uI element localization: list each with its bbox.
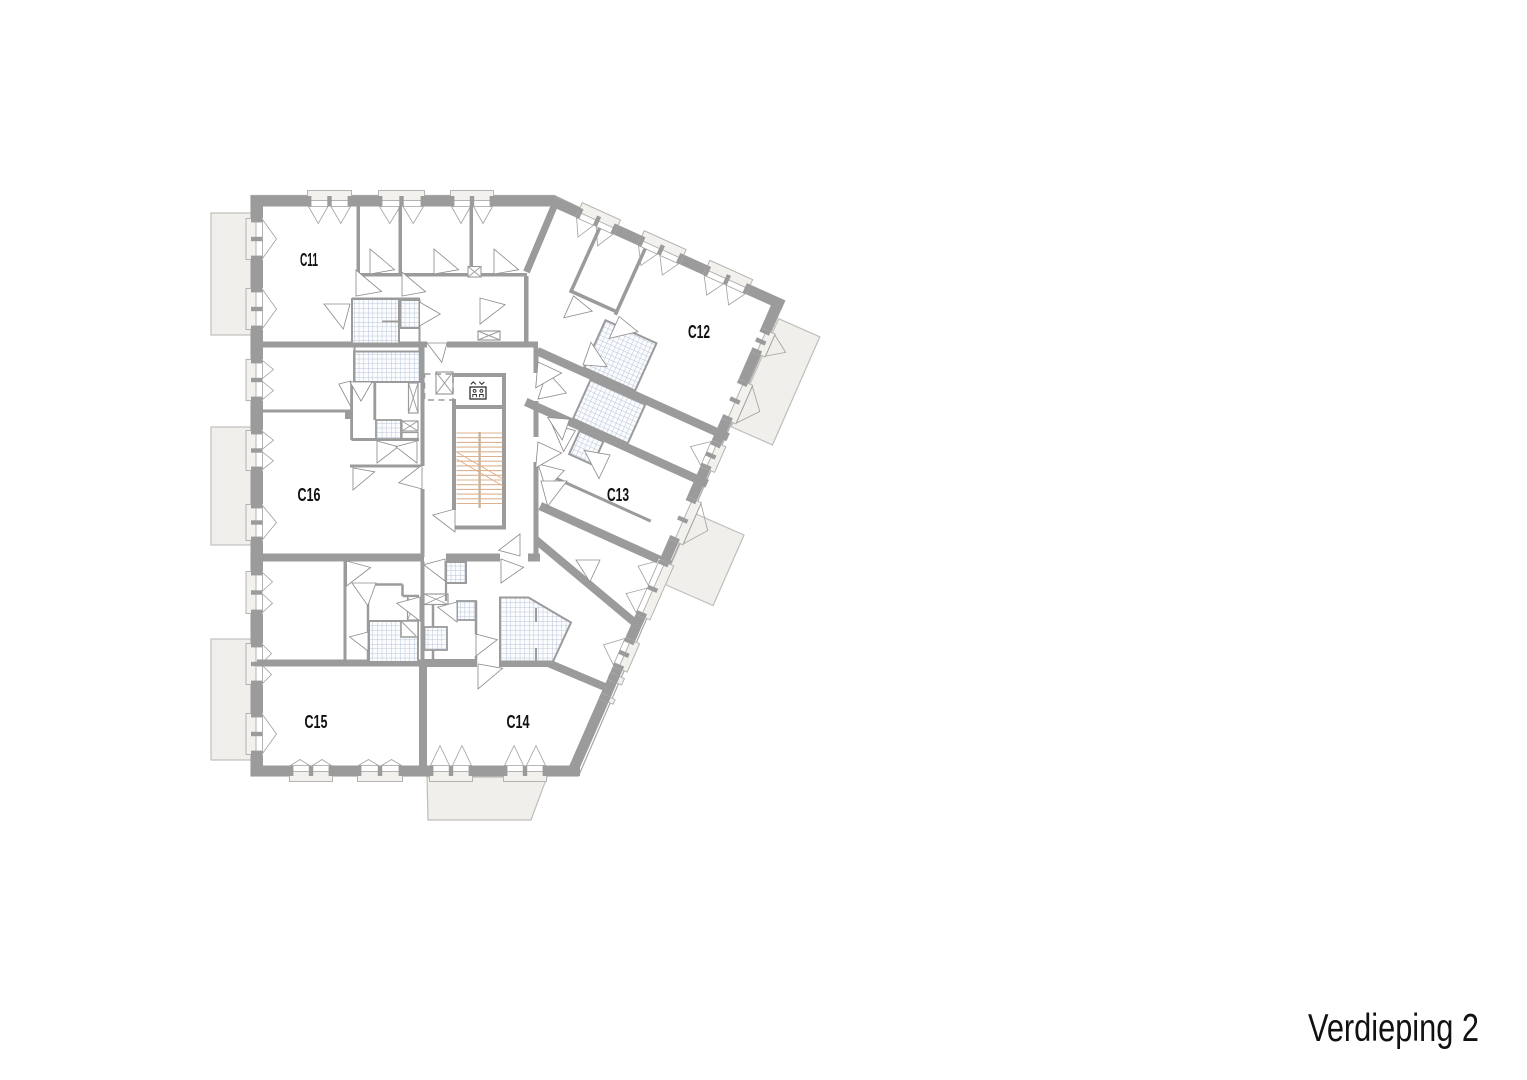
svg-text:C14: C14 xyxy=(507,712,530,732)
svg-text:C15: C15 xyxy=(305,712,328,732)
svg-text:C12: C12 xyxy=(688,322,710,342)
svg-text:C16: C16 xyxy=(298,485,321,505)
svg-text:Verdieping 2: Verdieping 2 xyxy=(1308,1007,1479,1050)
svg-text:C13: C13 xyxy=(607,485,629,505)
svg-text:C11: C11 xyxy=(300,250,318,270)
